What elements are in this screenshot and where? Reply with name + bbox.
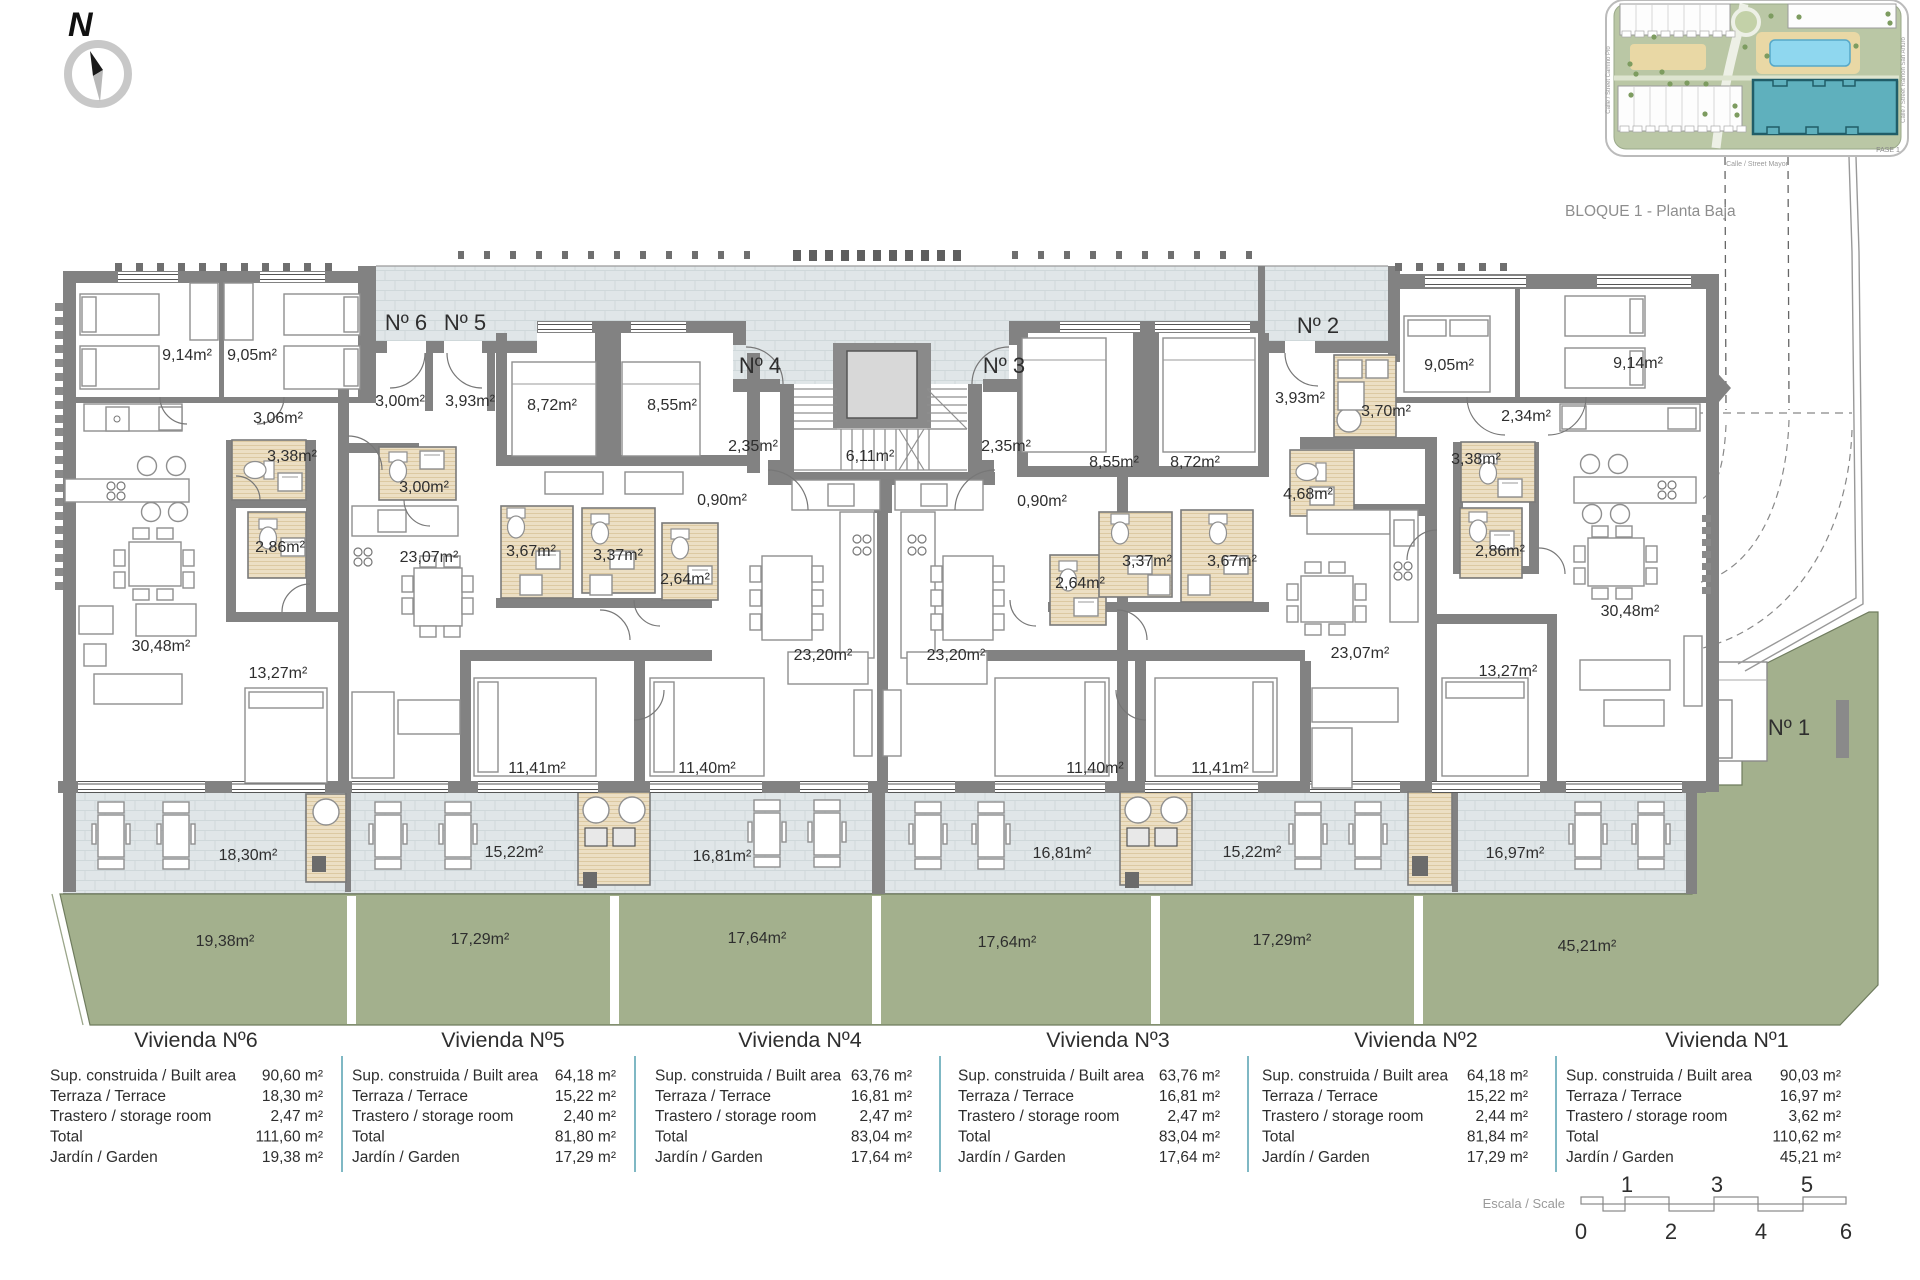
svg-text:9,14m²: 9,14m²	[162, 347, 212, 364]
svg-text:2,40 m²: 2,40 m²	[563, 1108, 616, 1125]
svg-text:90,60 m²: 90,60 m²	[262, 1068, 323, 1085]
svg-text:3,38m²: 3,38m²	[1451, 451, 1501, 468]
svg-text:2,47 m²: 2,47 m²	[270, 1108, 323, 1125]
svg-text:6: 6	[1840, 1219, 1852, 1244]
svg-text:23,20m²: 23,20m²	[927, 647, 986, 664]
svg-text:30,48m²: 30,48m²	[1601, 603, 1660, 620]
svg-text:4,68m²: 4,68m²	[1283, 486, 1333, 503]
svg-text:4: 4	[1755, 1219, 1767, 1244]
svg-text:111,60 m²: 111,60 m²	[256, 1129, 324, 1146]
svg-text:30,48m²: 30,48m²	[132, 638, 191, 655]
svg-text:Sup. construida / Built area: Sup. construida / Built area	[655, 1068, 841, 1085]
svg-text:19,38m²: 19,38m²	[196, 933, 255, 950]
svg-text:Vivienda Nº5: Vivienda Nº5	[441, 1028, 564, 1052]
svg-text:Nº 6: Nº 6	[385, 310, 427, 335]
svg-text:Nº 2: Nº 2	[1297, 313, 1339, 338]
svg-text:Jardín / Garden: Jardín / Garden	[1262, 1149, 1370, 1166]
svg-text:1: 1	[1621, 1172, 1633, 1197]
svg-text:Jardín / Garden: Jardín / Garden	[1566, 1149, 1674, 1166]
svg-text:Vivienda Nº6: Vivienda Nº6	[134, 1028, 257, 1052]
svg-text:3,70m²: 3,70m²	[1361, 403, 1411, 420]
svg-text:Total: Total	[1262, 1129, 1295, 1146]
svg-text:3,62 m²: 3,62 m²	[1788, 1108, 1841, 1125]
svg-text:Vivienda Nº1: Vivienda Nº1	[1665, 1028, 1788, 1052]
svg-text:2,86m²: 2,86m²	[1475, 543, 1525, 560]
svg-text:Sup. construida / Built area: Sup. construida / Built area	[50, 1068, 236, 1085]
svg-text:45,21m²: 45,21m²	[1558, 938, 1617, 955]
svg-text:9,14m²: 9,14m²	[1613, 355, 1663, 372]
svg-text:2,64m²: 2,64m²	[660, 571, 710, 588]
svg-text:23,20m²: 23,20m²	[794, 647, 853, 664]
svg-text:17,64 m²: 17,64 m²	[1159, 1149, 1220, 1166]
svg-text:64,18 m²: 64,18 m²	[555, 1068, 616, 1085]
svg-text:Sup. construida / Built area: Sup. construida / Built area	[1262, 1068, 1448, 1085]
svg-text:3,93m²: 3,93m²	[445, 393, 495, 410]
svg-text:Calle / Street Camino Pio: Calle / Street Camino Pio	[1606, 46, 1612, 114]
svg-text:63,76 m²: 63,76 m²	[1159, 1068, 1220, 1085]
svg-text:Terraza / Terrace: Terraza / Terrace	[352, 1088, 468, 1105]
svg-text:Trastero / storage room: Trastero / storage room	[50, 1108, 211, 1125]
svg-text:Terraza / Terrace: Terraza / Terrace	[655, 1088, 771, 1105]
svg-text:16,97m²: 16,97m²	[1486, 845, 1545, 862]
svg-text:2: 2	[1665, 1219, 1677, 1244]
svg-text:0: 0	[1575, 1219, 1587, 1244]
svg-text:81,80 m²: 81,80 m²	[555, 1129, 616, 1146]
svg-text:Trastero / storage room: Trastero / storage room	[1262, 1108, 1423, 1125]
svg-text:2,35m²: 2,35m²	[981, 438, 1031, 455]
svg-text:Terraza / Terrace: Terraza / Terrace	[958, 1088, 1074, 1105]
svg-text:Trastero / storage room: Trastero / storage room	[1566, 1108, 1727, 1125]
svg-text:Nº 5: Nº 5	[444, 310, 486, 335]
svg-text:16,81 m²: 16,81 m²	[1159, 1088, 1220, 1105]
svg-text:Sup. construida / Built area: Sup. construida / Built area	[958, 1068, 1144, 1085]
svg-text:Terraza / Terrace: Terraza / Terrace	[50, 1088, 166, 1105]
svg-text:Total: Total	[50, 1129, 83, 1146]
svg-text:2,64m²: 2,64m²	[1055, 575, 1105, 592]
svg-text:3,00m²: 3,00m²	[399, 479, 449, 496]
svg-text:8,72m²: 8,72m²	[1170, 454, 1220, 471]
svg-text:16,81 m²: 16,81 m²	[851, 1088, 912, 1105]
svg-text:17,64m²: 17,64m²	[978, 934, 1037, 951]
svg-text:6,11m²: 6,11m²	[846, 448, 895, 465]
svg-text:Jardín / Garden: Jardín / Garden	[958, 1149, 1066, 1166]
svg-text:3,37m²: 3,37m²	[593, 547, 643, 564]
svg-text:18,30m²: 18,30m²	[219, 847, 278, 864]
svg-text:11,40m²: 11,40m²	[678, 760, 736, 777]
svg-text:13,27m²: 13,27m²	[1479, 663, 1538, 680]
svg-text:15,22m²: 15,22m²	[485, 844, 544, 861]
svg-text:FASE 1: FASE 1	[1876, 147, 1900, 154]
svg-text:Nº 1: Nº 1	[1768, 715, 1810, 740]
svg-text:Trastero / storage room: Trastero / storage room	[655, 1108, 816, 1125]
svg-text:3,00m²: 3,00m²	[375, 393, 425, 410]
svg-text:17,29 m²: 17,29 m²	[1467, 1149, 1528, 1166]
svg-text:Total: Total	[1566, 1129, 1599, 1146]
svg-text:Total: Total	[352, 1129, 385, 1146]
svg-text:Calle / Street Mayor: Calle / Street Mayor	[1726, 161, 1789, 168]
svg-text:3,06m²: 3,06m²	[253, 410, 303, 427]
svg-text:83,04 m²: 83,04 m²	[1159, 1129, 1220, 1146]
svg-text:110,62 m²: 110,62 m²	[1772, 1129, 1841, 1146]
svg-text:8,55m²: 8,55m²	[1089, 454, 1139, 471]
svg-text:90,03 m²: 90,03 m²	[1780, 1068, 1841, 1085]
svg-text:19,38 m²: 19,38 m²	[262, 1149, 323, 1166]
svg-text:9,05m²: 9,05m²	[227, 347, 277, 364]
svg-text:11,41m²: 11,41m²	[508, 760, 566, 777]
svg-text:Trastero / storage room: Trastero / storage room	[352, 1108, 513, 1125]
svg-text:17,64 m²: 17,64 m²	[851, 1149, 912, 1166]
svg-text:Jardín / Garden: Jardín / Garden	[655, 1149, 763, 1166]
svg-text:Vivienda Nº4: Vivienda Nº4	[738, 1028, 861, 1052]
svg-text:17,64m²: 17,64m²	[728, 930, 787, 947]
svg-text:83,04 m²: 83,04 m²	[851, 1129, 912, 1146]
svg-text:3,37m²: 3,37m²	[1122, 553, 1172, 570]
svg-text:Jardín / Garden: Jardín / Garden	[50, 1149, 158, 1166]
svg-text:Terraza / Terrace: Terraza / Terrace	[1566, 1088, 1682, 1105]
svg-text:Escala / Scale: Escala / Scale	[1483, 1196, 1565, 1211]
svg-text:0,90m²: 0,90m²	[1017, 493, 1067, 510]
svg-text:Nº 3: Nº 3	[983, 353, 1025, 378]
svg-text:8,72m²: 8,72m²	[527, 397, 577, 414]
svg-text:Jardín / Garden: Jardín / Garden	[352, 1149, 460, 1166]
svg-text:3,38m²: 3,38m²	[267, 448, 317, 465]
svg-text:Nº 4: Nº 4	[739, 353, 781, 378]
svg-text:17,29 m²: 17,29 m²	[555, 1149, 616, 1166]
svg-text:45,21 m²: 45,21 m²	[1780, 1149, 1841, 1166]
svg-text:13,27m²: 13,27m²	[249, 665, 308, 682]
svg-text:Sup. construida / Built area: Sup. construida / Built area	[352, 1068, 538, 1085]
svg-text:23,07m²: 23,07m²	[1331, 645, 1390, 662]
svg-text:17,29m²: 17,29m²	[1253, 932, 1312, 949]
svg-text:15,22 m²: 15,22 m²	[555, 1088, 616, 1105]
svg-text:9,05m²: 9,05m²	[1424, 357, 1474, 374]
svg-text:Total: Total	[655, 1129, 688, 1146]
svg-text:16,97 m²: 16,97 m²	[1780, 1088, 1841, 1105]
svg-text:3,67m²: 3,67m²	[506, 543, 556, 560]
svg-text:11,40m²: 11,40m²	[1066, 760, 1124, 777]
svg-text:5: 5	[1801, 1172, 1813, 1197]
svg-text:16,81m²: 16,81m²	[1033, 845, 1092, 862]
svg-text:Vivienda Nº3: Vivienda Nº3	[1046, 1028, 1169, 1052]
svg-text:0,90m²: 0,90m²	[697, 492, 747, 509]
svg-text:Terraza / Terrace: Terraza / Terrace	[1262, 1088, 1378, 1105]
svg-text:2,35m²: 2,35m²	[728, 438, 778, 455]
svg-text:3,67m²: 3,67m²	[1207, 553, 1257, 570]
svg-text:BLOQUE 1 - Planta Baja: BLOQUE 1 - Planta Baja	[1565, 203, 1736, 220]
svg-text:2,44 m²: 2,44 m²	[1475, 1108, 1528, 1125]
svg-text:2,34m²: 2,34m²	[1501, 408, 1551, 425]
svg-text:64,18 m²: 64,18 m²	[1467, 1068, 1528, 1085]
svg-text:N: N	[68, 6, 94, 44]
svg-text:16,81m²: 16,81m²	[693, 848, 752, 865]
svg-text:Sup. construida / Built area: Sup. construida / Built area	[1566, 1068, 1752, 1085]
svg-text:3: 3	[1711, 1172, 1723, 1197]
svg-text:15,22m²: 15,22m²	[1223, 844, 1282, 861]
svg-text:Trastero / storage room: Trastero / storage room	[958, 1108, 1119, 1125]
svg-text:23,07m²: 23,07m²	[400, 549, 459, 566]
svg-text:81,84 m²: 81,84 m²	[1467, 1129, 1528, 1146]
svg-text:3,93m²: 3,93m²	[1275, 390, 1325, 407]
svg-text:2,47 m²: 2,47 m²	[859, 1108, 912, 1125]
svg-text:11,41m²: 11,41m²	[1191, 760, 1249, 777]
svg-text:18,30 m²: 18,30 m²	[262, 1088, 323, 1105]
svg-text:8,55m²: 8,55m²	[647, 397, 697, 414]
svg-text:Calle / Street Ramon San Artur: Calle / Street Ramon San Arturo	[1901, 36, 1907, 122]
svg-text:2,47 m²: 2,47 m²	[1167, 1108, 1220, 1125]
svg-text:Total: Total	[958, 1129, 991, 1146]
svg-text:15,22 m²: 15,22 m²	[1467, 1088, 1528, 1105]
svg-text:2,86m²: 2,86m²	[255, 539, 305, 556]
svg-text:Vivienda Nº2: Vivienda Nº2	[1354, 1028, 1477, 1052]
svg-text:17,29m²: 17,29m²	[451, 931, 510, 948]
svg-text:63,76 m²: 63,76 m²	[851, 1068, 912, 1085]
